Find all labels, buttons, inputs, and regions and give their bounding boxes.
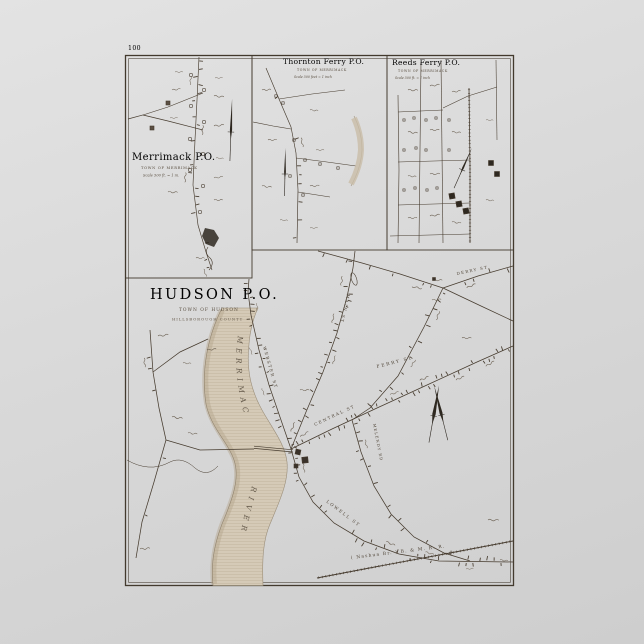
street-label-ferry: FERRY ST [376, 356, 413, 370]
street-labels: WEBSTER ST MAIN ST CENTRAL ST FERRY ST D… [262, 264, 488, 561]
reeds-subtitle: TOWN OF MERRIMACK [398, 69, 448, 73]
street-label-central: CENTRAL ST [313, 403, 356, 426]
thornton-scale: Scale 500 feet = 1 inch [294, 75, 332, 79]
street-label-melendy: MELENDY RD [372, 423, 383, 461]
merrimack-title: Merrimack P.O. [132, 152, 215, 163]
hudson-subtitle: TOWN OF HUDSON [179, 308, 239, 313]
poster-mockup-background: 100 [0, 0, 644, 644]
atlas-page: 100 [105, 31, 538, 610]
map-symbols [150, 74, 500, 468]
street-label-lowell: LOWELL ST [325, 499, 361, 528]
hudson-title: HUDSON P.O. [150, 287, 279, 303]
merrimack-scale: Scale 500 ft. = 1 in. [143, 174, 179, 178]
thornton-subtitle: TOWN OF MERRIMACK [297, 68, 347, 72]
reeds-title: Reeds Ferry P.O. [392, 58, 460, 67]
street-label-webster: WEBSTER ST [262, 346, 279, 389]
hudson-title-block: HUDSON P.O. TOWN OF HUDSON HILLSBOROUGH … [150, 287, 279, 322]
thornton-title: Thornton Ferry P.O. [283, 57, 364, 66]
merrimack-subtitle: TOWN OF MERRIMACK [141, 166, 198, 170]
street-label-main: MAIN ST [339, 294, 351, 324]
hudson-county: HILLSBOROUGH COUNTY [172, 317, 243, 322]
reeds-inset-title: Reeds Ferry P.O. TOWN OF MERRIMACK Scale… [392, 58, 460, 80]
map-canvas: 100 [105, 31, 538, 610]
reeds-scale: Scale 500 ft. = 1 inch [395, 76, 430, 80]
merrimack-river [204, 308, 287, 586]
page-number: 100 [128, 45, 141, 52]
railroad-label: ( Nashua Br. ) B. & M. R. R. [351, 544, 446, 561]
thornton-inset-title: Thornton Ferry P.O. TOWN OF MERRIMACK Sc… [283, 57, 364, 79]
merrimack-inset-title: Merrimack P.O. TOWN OF MERRIMACK Scale 5… [132, 152, 215, 178]
